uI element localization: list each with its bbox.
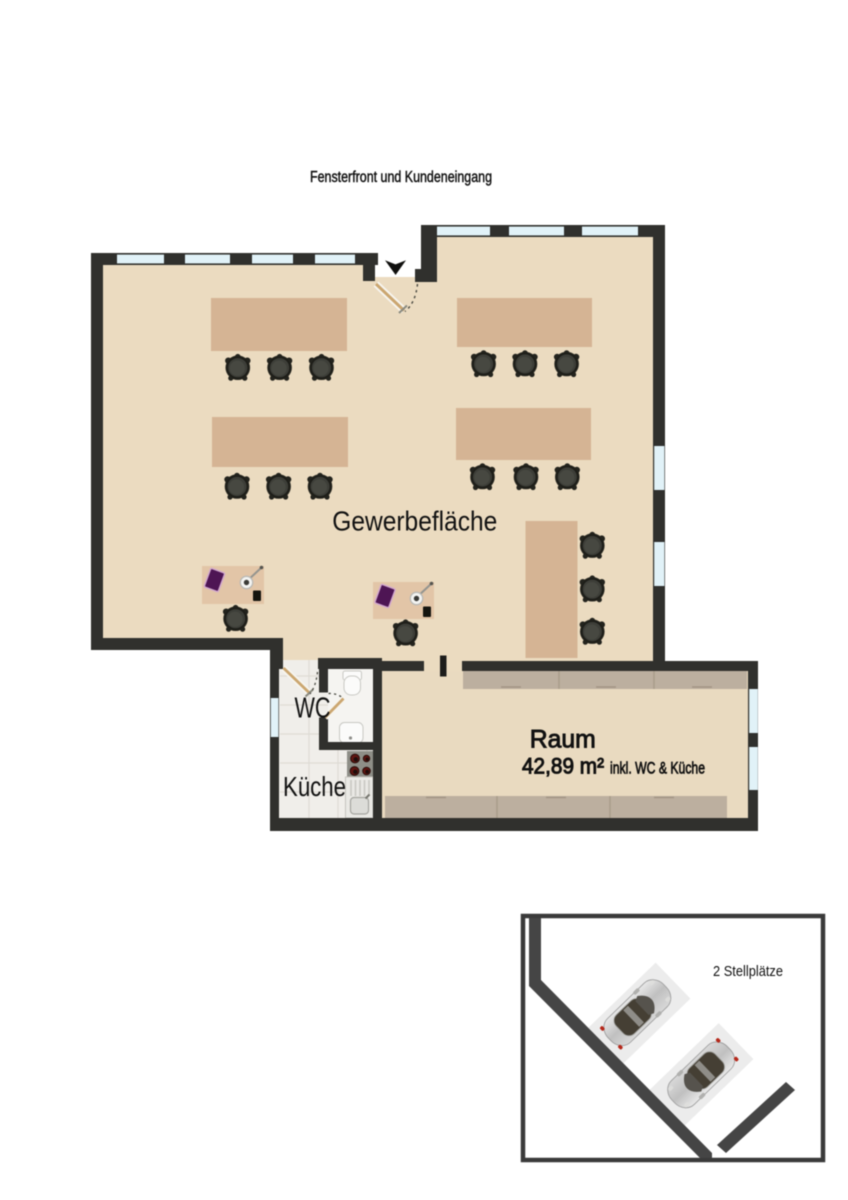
svg-text:inkl. WC & Küche: inkl. WC & Küche bbox=[610, 759, 705, 778]
svg-text:42,89 m²: 42,89 m² bbox=[522, 754, 604, 779]
svg-text:Küche: Küche bbox=[283, 771, 346, 802]
svg-text:2 Stellplätze: 2 Stellplätze bbox=[713, 963, 783, 980]
svg-text:Fensterfront und Kundeneingang: Fensterfront und Kundeneingang bbox=[310, 169, 492, 186]
svg-text:Gewerbefläche: Gewerbefläche bbox=[332, 506, 497, 537]
svg-text:Raum: Raum bbox=[530, 726, 596, 754]
svg-text:WC: WC bbox=[295, 693, 331, 725]
